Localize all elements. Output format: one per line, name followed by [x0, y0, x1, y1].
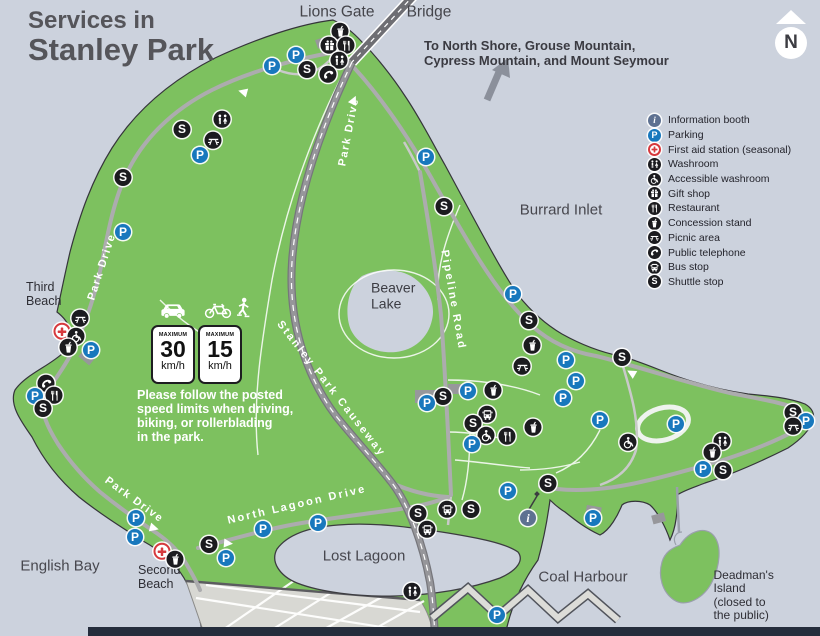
shuttle-icon: S	[463, 501, 480, 518]
legend-label-info: Information booth	[668, 114, 750, 126]
marker-parking: P	[500, 482, 516, 500]
speed-sign-value: 30	[153, 338, 193, 361]
third-beach: Third Beach	[26, 280, 61, 308]
marker-parking: P	[127, 528, 143, 546]
marker-shuttle: S	[463, 500, 480, 518]
marker-parking: P	[83, 341, 99, 359]
marker-parking: P	[585, 509, 601, 527]
parking-icon: P	[695, 461, 711, 477]
legend-item-accessible: Accessible washroom	[648, 172, 791, 187]
shuttle-icon: S	[648, 275, 661, 288]
parking-icon: P	[255, 521, 271, 537]
marker-parking: P	[489, 606, 505, 624]
car-icon	[158, 300, 188, 319]
legend-label-phone: Public telephone	[668, 247, 746, 259]
park-drive-top: Park Drive	[336, 97, 361, 168]
marker-parking: P	[668, 415, 684, 433]
picnic-icon	[648, 231, 661, 244]
parking-icon: P	[192, 147, 208, 163]
parking-icon: P	[419, 395, 435, 411]
map-title-line1: Services in	[28, 8, 214, 34]
marker-shuttle: S	[614, 348, 631, 366]
parking-icon: P	[460, 383, 476, 399]
direction-note-line2: Cypress Mountain, and Mount Seymour	[424, 53, 669, 68]
marker-parking: P	[115, 223, 131, 241]
pipeline-road: Pipeline Road	[438, 249, 468, 351]
coal-harbour: Coal Harbour	[538, 570, 627, 587]
english-bay: English Bay	[20, 559, 99, 576]
legend-item-parking: PParking	[648, 128, 791, 143]
shuttle-icon: S	[540, 475, 557, 492]
shuttle-icon: S	[299, 61, 316, 78]
beaver-lake: Beaver Lake	[371, 280, 415, 311]
concession-icon	[485, 382, 502, 399]
marker-shuttle: S	[201, 535, 218, 553]
marker-washroom	[214, 111, 231, 132]
legend-label-shuttle: Shuttle stop	[668, 276, 723, 288]
marker-parking: P	[419, 394, 435, 412]
legend-label-firstaid: First aid station (seasonal)	[668, 144, 791, 156]
marker-restaurant	[499, 428, 516, 449]
marker-concession	[60, 339, 77, 360]
marker-parking: P	[192, 146, 208, 164]
washroom-icon	[648, 158, 661, 171]
concession-icon	[60, 339, 77, 356]
marker-parking: P	[464, 435, 480, 453]
marker-concession	[524, 337, 541, 358]
shuttle-icon: S	[715, 462, 732, 479]
phone-icon	[320, 66, 337, 83]
map-title: Services in Stanley Park	[28, 8, 214, 67]
parking-icon: P	[592, 412, 608, 428]
marker-shuttle: S	[299, 60, 316, 78]
north-compass: N	[773, 10, 809, 59]
legend-item-phone: Public telephone	[648, 245, 791, 260]
speed-sign-bikes: MAXIMUM 15 km/h	[198, 325, 242, 384]
north-arrow-icon	[776, 10, 806, 24]
marker-parking: P	[505, 285, 521, 303]
marker-parking: P	[568, 372, 584, 390]
legend-label-picnic: Picnic area	[668, 232, 720, 244]
speed-note: Please follow the posted speed limits wh…	[137, 388, 317, 445]
bus-icon	[439, 501, 456, 518]
speed-sign-value: 15	[200, 338, 240, 361]
picnic-icon	[785, 418, 802, 435]
parking-icon: P	[127, 529, 143, 545]
marker-info: i	[520, 509, 536, 527]
marker-parking: P	[218, 549, 234, 567]
gift-icon	[648, 187, 661, 200]
marker-shuttle: S	[410, 504, 427, 522]
legend-item-restaurant: Restaurant	[648, 201, 791, 216]
bus-icon	[419, 521, 436, 538]
legend-label-concession: Concession stand	[668, 217, 751, 229]
marker-picnic	[785, 418, 802, 439]
marker-shuttle: S	[540, 474, 557, 492]
phone-icon	[648, 246, 661, 259]
bicycle-icon	[203, 299, 233, 319]
shuttle-icon: S	[174, 121, 191, 138]
info-icon: i	[648, 114, 661, 127]
marker-washroom	[404, 583, 421, 604]
shuttle-icon: S	[115, 169, 132, 186]
picnic-icon	[72, 310, 89, 327]
burrard-inlet: Burrard Inlet	[520, 203, 603, 220]
bus-icon	[648, 261, 661, 274]
parking-icon: P	[585, 510, 601, 526]
marker-shuttle: S	[435, 387, 452, 405]
picnic-icon	[514, 358, 531, 375]
marker-phone	[320, 66, 337, 87]
marker-shuttle: S	[715, 461, 732, 479]
map-title-line2: Stanley Park	[28, 34, 214, 67]
marker-shuttle: S	[521, 311, 538, 329]
parking-icon: P	[668, 416, 684, 432]
parking-icon: P	[264, 58, 280, 74]
legend-label-accessible: Accessible washroom	[668, 173, 770, 185]
parking-icon: P	[464, 436, 480, 452]
parking-icon: P	[558, 352, 574, 368]
shuttle-icon: S	[410, 505, 427, 522]
legend-label-restaurant: Restaurant	[668, 202, 719, 214]
parking-icon: P	[505, 286, 521, 302]
speed-sign-vehicles: MAXIMUM 30 km/h	[151, 325, 195, 384]
legend-label-washroom: Washroom	[668, 158, 718, 170]
north-label: N	[775, 27, 807, 59]
parking-icon: P	[115, 224, 131, 240]
legend-item-firstaid: First aid station (seasonal)	[648, 142, 791, 157]
accessible-icon	[648, 173, 661, 186]
shuttle-icon: S	[614, 349, 631, 366]
marker-concession	[485, 382, 502, 403]
parking-icon: P	[83, 342, 99, 358]
marker-bus	[439, 501, 456, 522]
marker-parking: P	[558, 351, 574, 369]
marker-picnic	[514, 358, 531, 379]
parking-icon: P	[648, 129, 661, 142]
shuttle-icon: S	[435, 388, 452, 405]
shuttle-icon: S	[521, 312, 538, 329]
legend-item-info: iInformation booth	[648, 113, 791, 128]
shuttle-icon: S	[35, 400, 52, 417]
concession-icon	[167, 551, 184, 568]
north-lagoon-drive: North Lagoon Drive	[226, 483, 367, 527]
legend-item-bus: Bus stop	[648, 260, 791, 275]
info-icon: i	[520, 510, 536, 526]
marker-parking: P	[418, 148, 434, 166]
marker-shuttle: S	[436, 197, 453, 215]
marker-parking: P	[592, 411, 608, 429]
rollerblader-icon	[236, 297, 250, 319]
legend-item-concession: Concession stand	[648, 216, 791, 231]
marker-shuttle: S	[35, 399, 52, 417]
legend-label-parking: Parking	[668, 129, 704, 141]
legend-label-bus: Bus stop	[668, 261, 709, 273]
marker-parking: P	[310, 514, 326, 532]
marker-concession	[167, 551, 184, 572]
parking-icon: P	[500, 483, 516, 499]
legend-label-gift: Gift shop	[668, 188, 710, 200]
parking-icon: P	[568, 373, 584, 389]
speed-sign-unit: km/h	[200, 361, 240, 372]
marker-accessible	[478, 427, 495, 448]
marker-accessible	[620, 434, 637, 455]
deadmans-island: Deadman's Island (closed to the public)	[714, 569, 785, 623]
shuttle-icon: S	[201, 536, 218, 553]
concession-icon	[648, 217, 661, 230]
concession-icon	[704, 444, 721, 461]
washroom-icon	[214, 111, 231, 128]
shuttle-icon: S	[436, 198, 453, 215]
marker-parking: P	[695, 460, 711, 478]
washroom-icon	[404, 583, 421, 600]
accessible-icon	[478, 427, 495, 444]
park-drive-left: Park Drive	[85, 232, 118, 302]
parking-icon: P	[489, 607, 505, 623]
direction-note-line1: To North Shore, Grouse Mountain,	[424, 38, 669, 53]
legend-item-washroom: Washroom	[648, 157, 791, 172]
marker-parking: P	[264, 57, 280, 75]
marker-bus	[419, 521, 436, 542]
stanley-park-services-map: Services in Stanley Park To North Shore,…	[0, 0, 820, 636]
marker-parking: P	[460, 382, 476, 400]
lions-gate-label: Lions Gate	[300, 3, 375, 20]
bridge-label: Bridge	[407, 3, 452, 20]
concession-icon	[524, 337, 541, 354]
firstaid-icon	[648, 143, 661, 156]
restaurant-icon	[648, 202, 661, 215]
parking-icon: P	[310, 515, 326, 531]
accessible-icon	[620, 434, 637, 451]
direction-note: To North Shore, Grouse Mountain, Cypress…	[424, 38, 669, 69]
legend-item-gift: Gift shop	[648, 186, 791, 201]
marker-parking: P	[555, 389, 571, 407]
speed-sign-unit: km/h	[153, 361, 193, 372]
parking-icon: P	[218, 550, 234, 566]
parking-icon: P	[418, 149, 434, 165]
legend: iInformation boothPParkingFirst aid stat…	[648, 113, 791, 289]
restaurant-icon	[499, 428, 516, 445]
lost-lagoon: Lost Lagoon	[323, 549, 406, 566]
marker-shuttle: S	[115, 168, 132, 186]
concession-icon	[525, 419, 542, 436]
parking-icon: P	[555, 390, 571, 406]
marker-parking: P	[128, 509, 144, 527]
parking-icon: P	[128, 510, 144, 526]
legend-item-shuttle: SShuttle stop	[648, 275, 791, 290]
legend-item-picnic: Picnic area	[648, 231, 791, 246]
marker-parking: P	[255, 520, 271, 538]
marker-concession	[525, 419, 542, 440]
marker-shuttle: S	[174, 120, 191, 138]
